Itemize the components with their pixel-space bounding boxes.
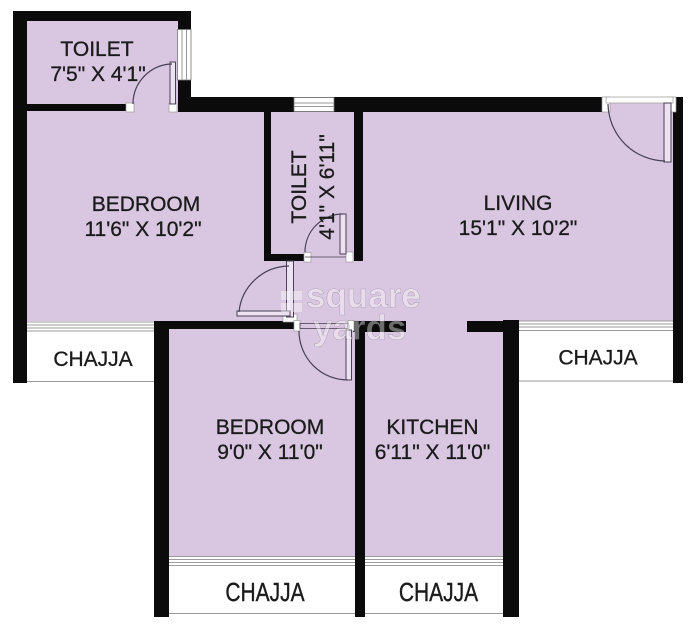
svg-text:TOILET: TOILET <box>60 38 133 61</box>
svg-text:11'6" X 10'2": 11'6" X 10'2" <box>84 218 201 241</box>
svg-text:BEDROOM: BEDROOM <box>92 193 201 216</box>
svg-text:CHAJJA: CHAJJA <box>558 347 637 370</box>
svg-text:CHAJJA: CHAJJA <box>225 578 304 608</box>
svg-text:yards: yards <box>313 309 406 348</box>
svg-text:TOILET: TOILET <box>288 150 311 223</box>
svg-text:LIVING: LIVING <box>484 192 553 215</box>
svg-text:6'11" X 11'0": 6'11" X 11'0" <box>375 441 491 464</box>
svg-text:15'1" X 10'2": 15'1" X 10'2" <box>459 217 578 240</box>
svg-text:CHAJJA: CHAJJA <box>399 578 478 608</box>
svg-text:4'1" X 6'11": 4'1" X 6'11" <box>316 134 339 239</box>
svg-text:9'0" X 11'0": 9'0" X 11'0" <box>217 441 322 464</box>
svg-text:KITCHEN: KITCHEN <box>386 416 478 439</box>
svg-text:BEDROOM: BEDROOM <box>216 416 325 439</box>
svg-text:CHAJJA: CHAJJA <box>53 348 132 371</box>
svg-text:7'5" X 4'1": 7'5" X 4'1" <box>50 63 145 86</box>
